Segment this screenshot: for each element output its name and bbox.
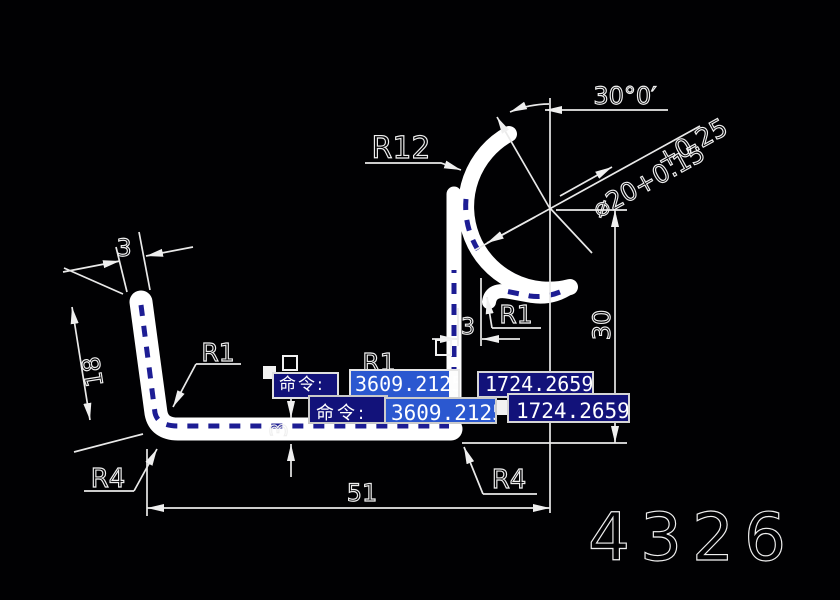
r1-left-label: R1 [201, 338, 234, 367]
coordinate-x-value-row1: 3609.2125 [351, 371, 449, 397]
r4-right-label: R4 [492, 465, 527, 495]
diameter-label: ⌀20+0.15 [588, 138, 710, 223]
grip-handle[interactable] [283, 356, 297, 370]
coordinate-y-field-row2[interactable]: 1724.2659 [507, 393, 630, 423]
dim-18-label: 18 [77, 355, 109, 390]
angle-label: 30°0′ [593, 82, 656, 110]
r12-label: R12 [371, 131, 430, 166]
cad-viewport[interactable]: 3 18 R1 R1 3 51 30 30°0′ +0.25 ⌀20+0.15 … [0, 0, 840, 600]
dim-3-top-label: 3 [116, 234, 131, 262]
dim-30-label: 30 [588, 310, 616, 341]
r4-left-label: R4 [91, 464, 126, 494]
dim-51-label: 51 [347, 479, 378, 507]
cad-drawing: 3 18 R1 R1 3 51 30 30°0′ +0.25 ⌀20+0.15 … [0, 0, 840, 600]
coordinate-x-field-row2[interactable]: 3609.2125 [384, 397, 497, 424]
dimension-texts: 3 18 R1 R1 3 51 30 30°0′ +0.25 ⌀20+0.15 … [77, 82, 796, 576]
r1-right-label: R1 [499, 300, 532, 329]
command-prompt-row2: 命令: [308, 395, 388, 424]
part-number: 4326 [588, 499, 796, 576]
dim-3-gap-label: 3 [461, 315, 475, 340]
dim-3-bottom-label: 3 [267, 423, 293, 438]
